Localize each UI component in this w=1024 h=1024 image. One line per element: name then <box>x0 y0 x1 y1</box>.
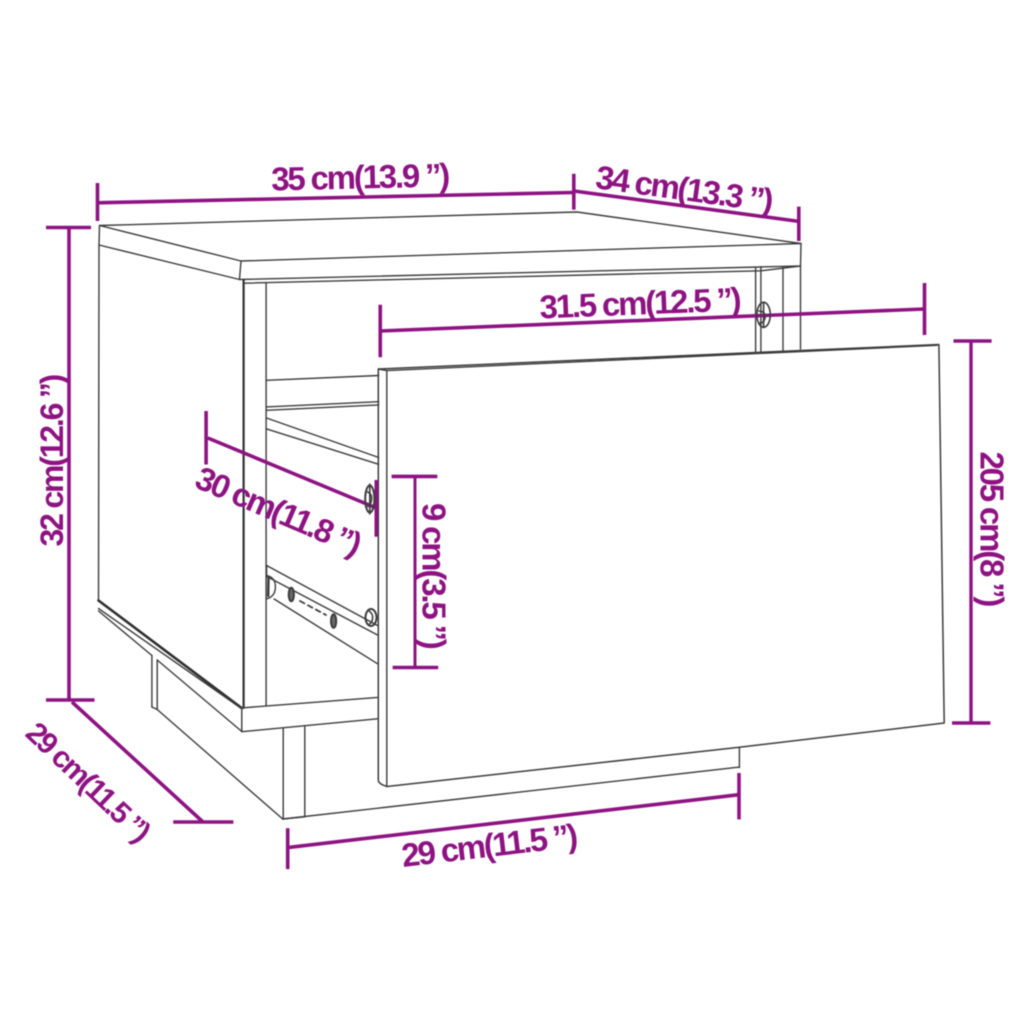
svg-text:9 cm(3.5 ”): 9 cm(3.5 ”) <box>416 503 453 649</box>
svg-text:32 cm(12.6 ”): 32 cm(12.6 ”) <box>34 374 70 546</box>
svg-text:205 cm(8 ”): 205 cm(8 ”) <box>974 452 1011 607</box>
svg-text:35 cm(13.9 ”): 35 cm(13.9 ”) <box>271 156 450 197</box>
